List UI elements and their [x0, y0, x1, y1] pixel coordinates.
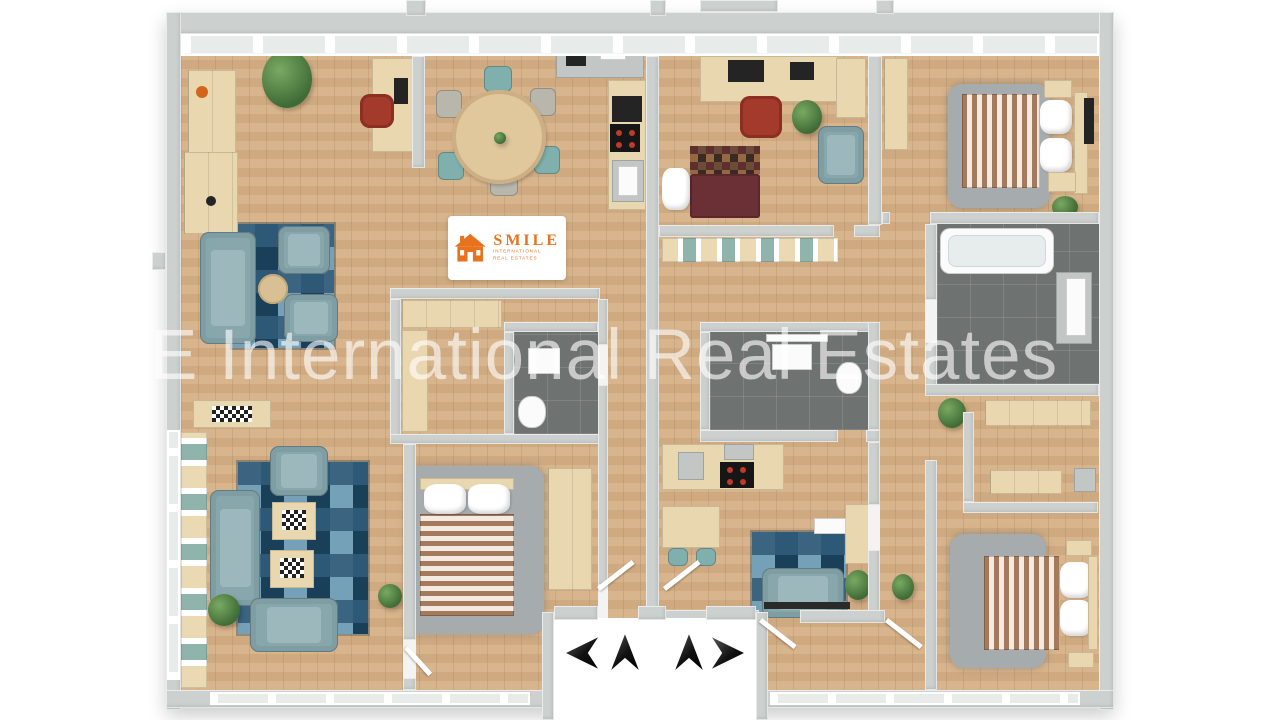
chessboard-icon [282, 510, 306, 530]
wc-sink [528, 348, 560, 374]
wall [504, 322, 598, 332]
wall [800, 610, 885, 623]
wall [659, 225, 834, 237]
wall [866, 430, 880, 442]
logo-title: SMILE [493, 233, 560, 249]
bed-striped [962, 94, 1040, 188]
loveseat [250, 598, 338, 652]
shower-glass [766, 334, 828, 342]
toilet-icon [836, 362, 862, 394]
wall [700, 322, 880, 332]
chessboard-icon [280, 558, 304, 578]
burner-icon [727, 467, 733, 473]
wall-closet [963, 502, 1098, 513]
cabinet [836, 58, 866, 118]
logo-subtitle-line2: REAL ESTATES [493, 256, 554, 263]
kitchen-sink [678, 452, 704, 480]
wall-porch [554, 606, 598, 620]
wall-hallway [598, 299, 608, 345]
nightstand [1044, 80, 1072, 98]
agency-logo: SMILE INTERNATIONAL REAL ESTATES [448, 216, 566, 280]
nightstand [1048, 172, 1076, 192]
wall [504, 332, 514, 434]
wardrobe [990, 470, 1062, 494]
wall [868, 442, 880, 505]
wall [925, 224, 937, 300]
sideboard [188, 70, 236, 158]
wall [390, 288, 600, 299]
plant-icon [792, 100, 822, 134]
cabinet [845, 504, 869, 564]
dining-table-small [662, 506, 720, 548]
wall-stub [650, 0, 666, 16]
sideboard [184, 152, 238, 234]
pillow [1040, 100, 1072, 134]
wardrobe [548, 468, 592, 590]
wall-stub [876, 0, 894, 14]
wall [403, 444, 416, 640]
pillow [424, 484, 466, 514]
oven-icon [612, 96, 642, 122]
monitor-icon [728, 60, 764, 82]
table-lamp [206, 196, 216, 206]
wall [925, 460, 937, 690]
plant-icon [208, 594, 240, 626]
monitor-icon [394, 78, 408, 104]
wall [700, 430, 838, 442]
logo-text-block: SMILE INTERNATIONAL REAL ESTATES [493, 233, 560, 264]
wall-porch [542, 612, 554, 720]
wall-stub [406, 0, 426, 16]
plant-icon [378, 584, 402, 608]
entrance-porch [554, 618, 756, 720]
monitor-icon [790, 62, 814, 80]
wall-stub [152, 252, 166, 270]
window-band-bottom [770, 692, 1080, 705]
wall [882, 212, 890, 224]
sofa [200, 232, 256, 344]
bed-striped [420, 514, 514, 616]
office-chair [740, 96, 782, 138]
wall-closet [963, 412, 974, 502]
wall-outer-right [1099, 12, 1114, 710]
plant-icon [892, 574, 914, 600]
sink-basin [618, 166, 638, 196]
plant-icon [262, 50, 312, 108]
nightstand [1066, 540, 1092, 556]
window-band-bottom [210, 692, 530, 705]
wall [925, 384, 1099, 396]
logo-house-icon [454, 229, 486, 267]
wall-partition [412, 56, 425, 168]
bed-quilt [690, 146, 760, 174]
pillow [1040, 138, 1072, 172]
range-hood [724, 444, 754, 460]
floorplan-scene: SMILE INTERNATIONAL REAL ESTATES E Inter… [0, 0, 1280, 720]
wardrobe [985, 400, 1091, 426]
bed-maroon [690, 174, 760, 218]
office-chair [360, 94, 394, 128]
bed-headboard [1088, 556, 1098, 650]
bathroom-sink [772, 344, 812, 370]
wall-porch [638, 606, 666, 620]
armchair [270, 446, 328, 496]
wall-unit-divider [646, 56, 659, 690]
cooktop-icon [720, 462, 754, 488]
door-opening [868, 505, 880, 550]
wall-stub [700, 0, 778, 12]
closet-row [662, 238, 838, 262]
door-opening [925, 300, 937, 342]
pillow [662, 168, 690, 210]
storage-box [1074, 468, 1096, 492]
toilet-icon [518, 396, 546, 428]
table-plant [494, 132, 506, 144]
window-band-top [181, 34, 1099, 56]
dining-chair [484, 66, 512, 92]
wall-porch [706, 606, 756, 620]
wall-hallway [598, 385, 608, 585]
door-opening [598, 345, 608, 385]
window-band-left [167, 430, 180, 680]
wardrobe [884, 58, 908, 150]
wardrobe [402, 330, 428, 432]
dining-chair [668, 548, 688, 566]
side-table [258, 274, 288, 304]
logo-subtitle-line1: INTERNATIONAL [493, 249, 554, 256]
vase [196, 86, 208, 98]
wall [868, 56, 882, 225]
wall-outer-top [166, 12, 1114, 34]
wall [403, 678, 416, 690]
nightstand [1068, 652, 1094, 668]
plant-icon [938, 398, 966, 428]
wall [930, 212, 1099, 224]
armchair [818, 126, 864, 184]
armchair [278, 226, 330, 274]
bed-striped [984, 556, 1060, 650]
wall [700, 332, 710, 430]
decor-books [212, 406, 252, 422]
bathtub-basin [948, 235, 1046, 267]
burner-icon [616, 130, 622, 136]
cooktop-icon [610, 124, 640, 152]
tv-icon [764, 602, 850, 609]
pillow [468, 484, 510, 514]
vanity-sink [1066, 278, 1086, 336]
wall [868, 322, 880, 430]
wall [390, 299, 401, 444]
wardrobe [402, 300, 502, 328]
wall [390, 434, 600, 444]
wall-art [1084, 98, 1094, 144]
armchair [284, 294, 338, 342]
picture-frame [814, 518, 846, 534]
wall [854, 225, 880, 237]
window-shelf-strip [181, 432, 207, 688]
sofa [210, 490, 260, 606]
